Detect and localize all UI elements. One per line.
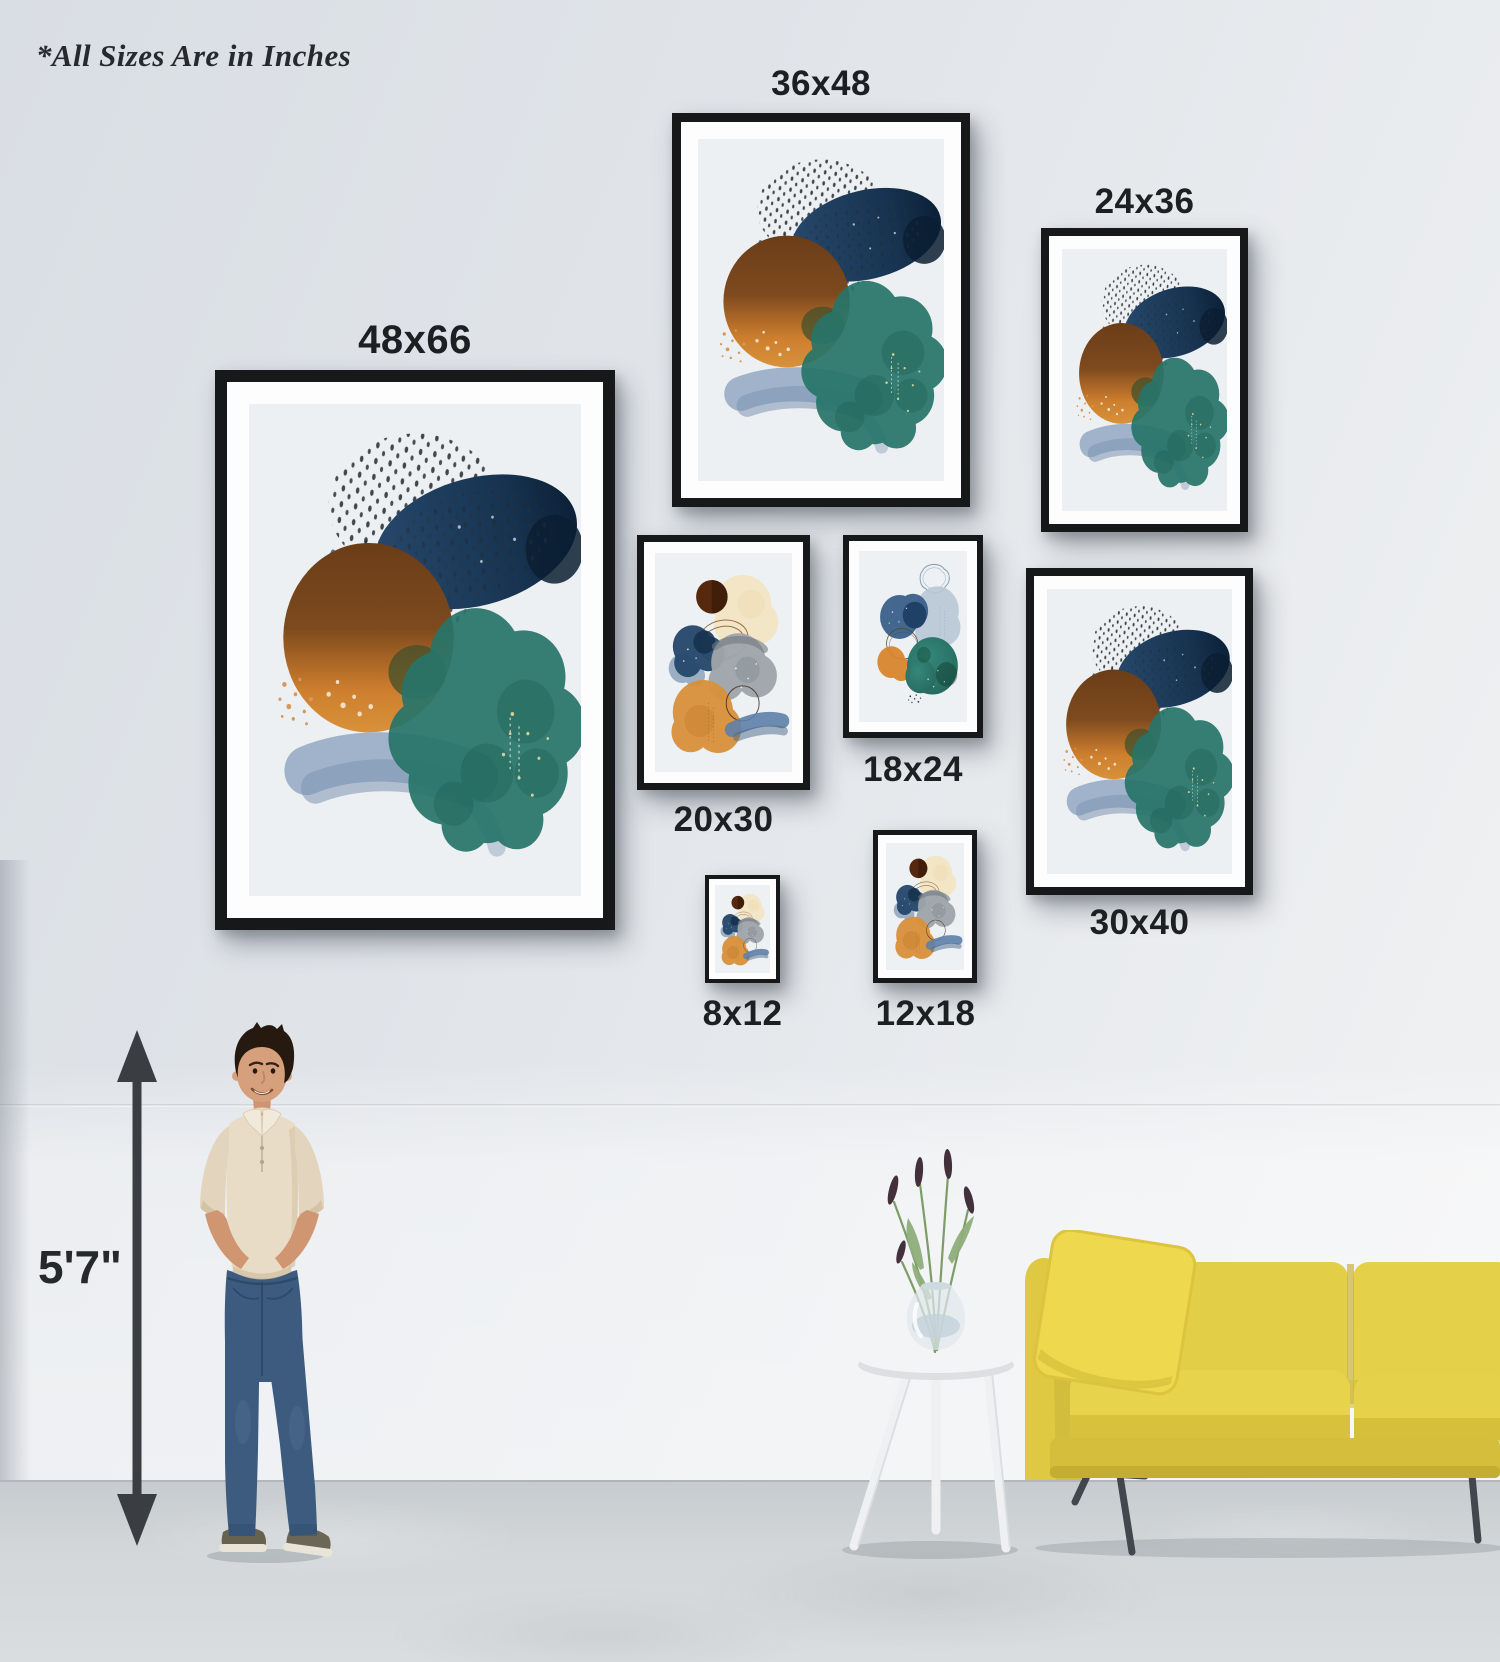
artwork-abstract-cream-gray-orange [715, 885, 770, 973]
artwork-abstract-navy-brown-teal [249, 404, 581, 896]
size-label-24x36: 24x36 [1041, 182, 1248, 222]
artwork-abstract-navy-brown-teal [1062, 249, 1227, 511]
size-label-48x66: 48x66 [215, 318, 615, 363]
frame-30x40 [1026, 568, 1253, 895]
size-label-36x48: 36x48 [672, 64, 970, 104]
frame-12x18 [873, 830, 977, 983]
size-label-18x24: 18x24 [843, 750, 983, 790]
frame-20x30 [637, 535, 810, 790]
height-label: 5'7" [24, 1240, 136, 1294]
size-label-8x12: 8x12 [680, 994, 805, 1034]
artwork-abstract-cream-gray-orange [655, 553, 792, 772]
frame-18x24 [843, 535, 983, 738]
frame-48x66 [215, 370, 615, 930]
artwork-abstract-navy-brown-teal [698, 139, 944, 481]
side-table-with-vase [830, 1140, 1050, 1560]
man-figure [163, 1020, 353, 1565]
frame-36x48 [672, 113, 970, 507]
artwork-abstract-navy-brown-teal [1047, 589, 1232, 874]
frame-24x36 [1041, 228, 1248, 532]
artwork-abstract-cream-gray-orange [886, 843, 964, 970]
size-label-20x30: 20x30 [637, 800, 810, 840]
sizes-note: *All Sizes Are in Inches [36, 38, 351, 74]
artwork-abstract-blue-orange-teal [859, 551, 967, 722]
size-label-12x18: 12x18 [853, 994, 998, 1034]
wall-shadow [0, 860, 30, 1500]
yellow-sofa [1020, 1230, 1500, 1560]
frame-8x12 [705, 875, 780, 983]
poster-size-comparison-chart: *All Sizes Are in Inches 48x66 36x48 24x… [0, 0, 1500, 1662]
size-label-30x40: 30x40 [1026, 903, 1253, 943]
